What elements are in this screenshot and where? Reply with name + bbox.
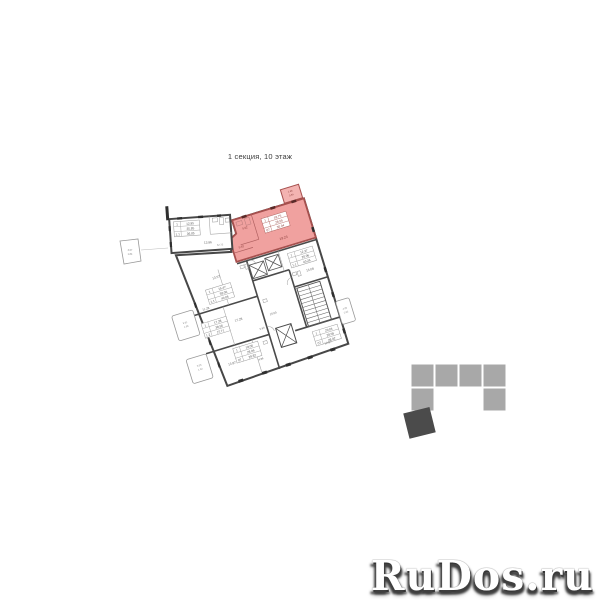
area-label: 3.67 (128, 249, 133, 252)
footprint-square (435, 364, 458, 387)
footprint-square (483, 364, 506, 387)
footprint-square (459, 364, 482, 387)
area-label: 13.86 (204, 240, 212, 245)
area-label: 1.84 (128, 253, 133, 256)
floor-plan-svg: 118.7528.550730.04112.3720.061.140.26115… (0, 0, 600, 600)
section-indicator[interactable] (403, 407, 435, 439)
table-cell: 1.1 (175, 232, 180, 236)
info-table: 112.9535.851.136.85 (173, 220, 200, 237)
footprint-square (411, 364, 434, 387)
footprint-square (411, 388, 434, 411)
top-left-block: 112.9535.851.136.8513.8662.75 (165, 202, 232, 253)
balcony-connector (141, 248, 168, 250)
plan-rotated-group: 118.7528.550730.04112.3720.061.140.26115… (146, 180, 364, 396)
screenshot-root: { "title": "1 секция, 10 этаж", "waterma… (0, 0, 600, 600)
table-cell: 36.85 (187, 231, 195, 236)
floor-title: 1 секция, 10 этаж (175, 152, 345, 161)
table-cell: 35.85 (186, 226, 194, 231)
building-footprint (403, 364, 506, 439)
area-label: 62.75 (217, 243, 224, 246)
watermark: RuDos.ru (370, 552, 594, 600)
table-cell: 12.95 (186, 221, 194, 226)
footprint-square (483, 388, 506, 411)
